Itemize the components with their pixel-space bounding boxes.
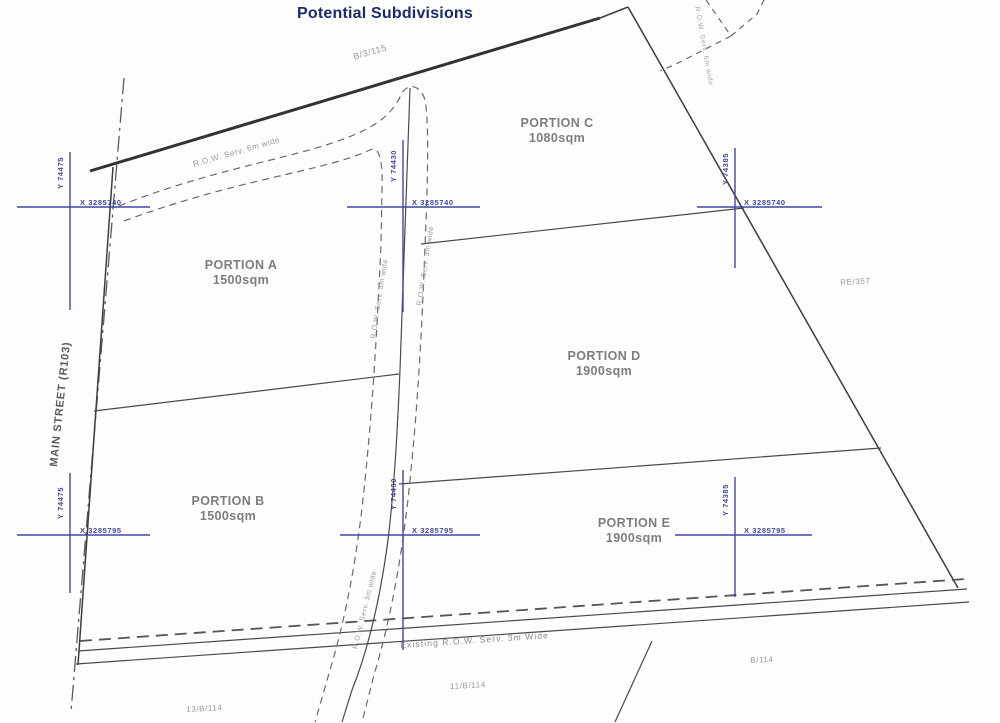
- boundary-right: [628, 7, 958, 588]
- portion-b-name: PORTION B: [191, 494, 264, 509]
- portion-c-label: PORTION C 1080sqm: [520, 116, 593, 146]
- cross-3-x-label: X 3285740: [744, 198, 786, 207]
- road-centerline: [342, 88, 410, 722]
- portion-a-name: PORTION A: [205, 258, 278, 273]
- portion-b-label: PORTION B 1500sqm: [191, 494, 264, 524]
- b-114-label: B/114: [750, 655, 774, 665]
- cross-4-x-label: X 3285795: [80, 526, 122, 535]
- cross-3-y-label: Y 74385: [721, 153, 730, 185]
- boundary-left: [78, 167, 113, 665]
- portion-c-name: PORTION C: [520, 116, 593, 131]
- divider-c-d: [421, 208, 744, 244]
- survey-drawing: [0, 0, 1000, 723]
- portion-d-area: 1900sqm: [567, 364, 640, 379]
- portion-e-name: PORTION E: [598, 516, 670, 531]
- portion-e-area: 1900sqm: [598, 531, 670, 546]
- cross-2-x-label: X 3285740: [412, 198, 454, 207]
- divider-d-e: [399, 448, 881, 484]
- cross-3: [697, 148, 822, 268]
- pocket-dashed-2: [731, 0, 764, 36]
- cross-4-y-label: Y 74475: [56, 487, 65, 519]
- portion-d-label: PORTION D 1900sqm: [567, 349, 640, 379]
- portion-b-area: 1500sqm: [191, 509, 264, 524]
- re-357-label: RE/357: [840, 276, 871, 287]
- portion-e-label: PORTION E 1900sqm: [598, 516, 670, 546]
- subdivision-plan: Potential Subdivisions PORTION A 1500sqm…: [0, 0, 1000, 723]
- boundary-top-corner: [600, 7, 628, 18]
- portion-c-area: 1080sqm: [520, 131, 593, 146]
- cross-5-y-label: Y 74430: [389, 478, 398, 510]
- lower-lot-line: [615, 641, 652, 722]
- cross-5-x-label: X 3285795: [412, 526, 454, 535]
- cross-2-y-label: Y 74430: [389, 150, 398, 182]
- portion-a-label: PORTION A 1500sqm: [205, 258, 278, 288]
- cross-1-y-label: Y 74475: [56, 157, 65, 189]
- cross-2: [347, 140, 480, 312]
- portion-a-area: 1500sqm: [205, 273, 278, 288]
- divider-a-b: [94, 374, 399, 411]
- erf-11-b-114-label: 11/B/114: [450, 680, 486, 691]
- boundary-top: [90, 18, 600, 171]
- cross-1-x-label: X 3285740: [80, 198, 122, 207]
- page-title: Potential Subdivisions: [297, 5, 473, 23]
- cross-6-x-label: X 3285795: [744, 526, 786, 535]
- cross-6: [675, 477, 812, 597]
- cross-1: [17, 152, 150, 310]
- erf-13-b-114-label: 13/B/114: [186, 703, 223, 714]
- portion-d-name: PORTION D: [567, 349, 640, 364]
- cross-6-y-label: Y 74385: [721, 484, 730, 516]
